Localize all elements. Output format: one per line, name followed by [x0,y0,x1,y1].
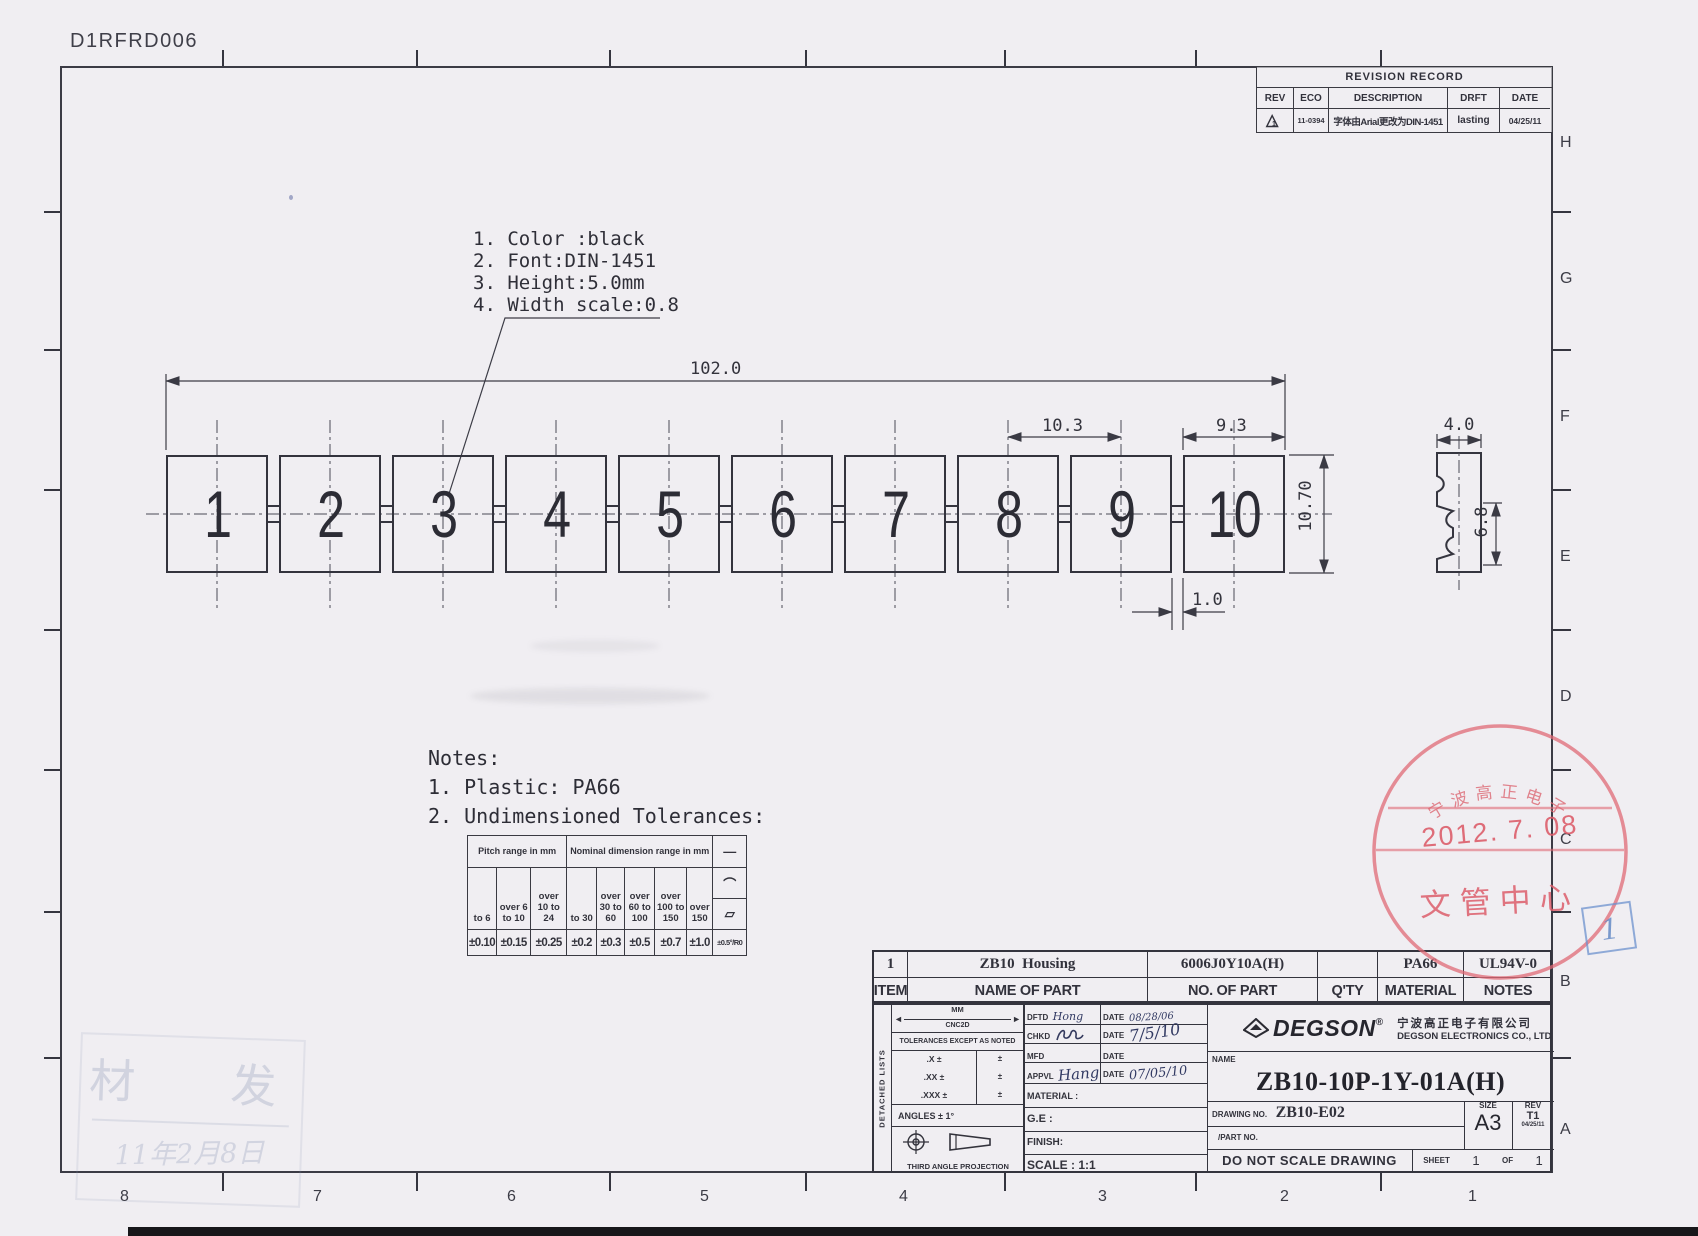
angle-symbol: ▱ [713,899,746,928]
zone-letter: G [1560,270,1572,288]
tolerance-table: Pitch range in mm Nominal dimension rang… [467,835,747,956]
cell-digit: 9 [1108,476,1134,552]
revision-col-drft: DRFT [1448,88,1500,109]
notes-block: Notes: 1. Plastic: PA66 2. Undimensioned… [428,744,765,831]
chkd-cell: CHKD [1027,1026,1085,1044]
revision-record-table: REVISION RECORD REV ECO DESCRIPTION DRFT… [1256,66,1553,133]
ge-label: G.E : [1027,1113,1053,1125]
revision-eco-cell: 11-0394 [1294,109,1329,132]
grid-line [1024,1154,1207,1155]
tol-x-row: .X ± [892,1054,976,1064]
revision-date-cell: 04/25/11 [1500,109,1550,132]
part-notes: UL94V-0 [1464,952,1552,977]
cell-digit: 8 [995,476,1021,552]
dim-label-cell-width: 9.3 [1216,416,1247,436]
revision-col-rev: REV [1257,88,1294,109]
pm-sign: ± [976,1090,1024,1099]
cell-digit: 6 [769,476,795,552]
dim-label-pitch: 10.3 [1042,416,1083,436]
tol-range: to 6 [468,868,497,930]
part-name-row: NAME ZB10-10P-1Y-01A(H) [1207,1051,1554,1101]
projection-label: THIRD ANGLE PROJECTION [892,1162,1024,1171]
strip-cell-3: 3 [392,455,494,573]
parts-col-qty: Q'TY [1318,978,1378,1004]
chkd-signature-icon [1055,1027,1085,1043]
zone-number: 3 [1098,1188,1107,1206]
rev-value: T1 [1512,1110,1554,1122]
date-label: DATE [1103,1070,1124,1079]
tol-pitch-header: Pitch range in mm [468,836,567,868]
scan-edge-bar [128,1227,1698,1236]
revision-col-desc: DESCRIPTION [1329,88,1448,109]
projection-box: THIRD ANGLE PROJECTION [892,1127,1024,1171]
part-qty [1318,952,1378,977]
grid-line [1024,1005,1025,1171]
parts-col-item: ITEM [874,978,908,1004]
marker-strip: 12345678910 [166,455,1286,573]
date-label: DATE [1103,1052,1124,1061]
pm-sign: ± [976,1072,1024,1081]
company-name-cn: 宁波高正电子有限公司 [1397,1015,1551,1031]
sheet-label: SHEET [1423,1156,1450,1165]
tolerances-note: TOLERANCES EXCEPT AS NOTED [892,1033,1024,1051]
appvl-date: 07/05/10 [1128,1063,1187,1083]
revision-header-row: REV ECO DESCRIPTION DRFT DATE [1257,88,1552,109]
tol-value: ±0.2 [567,930,597,956]
scan-smudge [530,640,660,652]
finish-label: FINISH: [1027,1137,1063,1148]
parts-col-name: NAME OF PART [908,978,1148,1004]
appvl-date-cell: DATE 07/05/10 [1103,1064,1187,1082]
cell-digit: 3 [430,476,456,552]
strip-cell-1: 1 [166,455,268,573]
scan-smudge [470,688,710,704]
zone-number: 6 [507,1188,516,1206]
tolerance-mini-grid: .X ± .XX ± .XXX ± ± ± ± [892,1051,1024,1105]
rev-label: REV [1512,1101,1554,1110]
company-block: 宁波高正电子有限公司 DEGSON ELECTRONICS CO., LTD [1397,1015,1551,1042]
dim-label-overall: 102.0 [690,359,741,379]
title-block: DETACHED LISTS MM ◄► CNC2D TOLERANCES EX… [872,1003,1552,1173]
strip-cell-4: 4 [505,455,607,573]
strip-cell-9: 9 [1070,455,1172,573]
size-value: A3 [1464,1110,1512,1136]
zone-number: 7 [313,1188,322,1206]
chkd-date: 7/5/10 [1128,1020,1182,1046]
drawing-no-label: DRAWING NO. [1212,1110,1267,1119]
dftd-signature: Hong [1053,1010,1083,1023]
mfd-label: MFD [1027,1052,1044,1061]
tol-value: ±0.25 [531,930,567,956]
tol-range: over 150 [687,868,713,930]
revision-rev-cell: △1 [1257,109,1294,132]
marking-spec-callout: 1. Color :black 2. Font:DIN-1451 3. Heig… [473,228,679,316]
chkd-date-cell: DATE 7/5/10 [1103,1023,1180,1043]
drawing-no-value: ZB10-E02 [1276,1104,1345,1121]
revision-triangle-icon: △1 [1266,113,1284,128]
tol-range: over 100 to 150 [655,868,687,930]
blue-stamp-number: 1 [1599,909,1620,948]
callout-line: 3. Height:5.0mm [473,272,679,294]
revision-drft-cell: lasting [1448,109,1500,132]
tol-range: over 6 to 10 [497,868,531,930]
faint-department-stamp: 材 发 11年2月8日 [75,1032,306,1208]
scale-label: SCALE : 1:1 [1027,1158,1096,1172]
strip-cell-5: 5 [618,455,720,573]
of-number: 1 [1536,1153,1543,1168]
units-box: MM ◄► CNC2D [892,1005,1024,1033]
date-label: DATE [1103,1031,1124,1040]
part-number: 6006J0Y10A(H) [1148,952,1318,977]
angles-tolerance: ANGLES ± 1° [892,1105,1024,1127]
part-no-label: /PART NO. [1218,1133,1258,1142]
tol-range: to 30 [567,868,597,930]
tol-value: ±0.10 [468,930,497,956]
revision-data-row: △1 11-0394 字体由Arial更改为DIN-1451 lasting 0… [1257,109,1552,132]
part-name-value: ZB10-10P-1Y-01A(H) [1207,1067,1554,1097]
tol-range: over 30 to 60 [597,868,625,930]
zone-letter: B [1560,973,1571,991]
revision-title: REVISION RECORD [1257,67,1552,88]
tol-value: ±0.15 [497,930,531,956]
appvl-signature: Hang [1057,1063,1100,1085]
parts-list-table: 1 ZB10 Housing 6006J0Y10A(H) PA66 UL94V-… [872,950,1552,1003]
sheet-number: 1 [1472,1153,1479,1168]
zone-letter: E [1560,548,1571,566]
dim-label-tab: 1.0 [1192,590,1223,610]
brand-name: DEGSON [1273,1015,1376,1042]
part-item: 1 [874,952,908,977]
detached-lists-label: DETACHED LISTS [878,1049,887,1127]
revision-desc-cell: 字体由Arial更改为DIN-1451 [1329,109,1448,132]
revision-col-eco: ECO [1294,88,1329,109]
parts-col-no: NO. OF PART [1148,978,1318,1004]
zone-letter: H [1560,134,1572,152]
dim-label-side-height: 6.8 [1472,500,1492,544]
appvl-cell: APPVL Hang [1027,1065,1099,1084]
chkd-label: CHKD [1027,1032,1050,1041]
tol-range: over 60 to 100 [625,868,655,930]
do-not-scale-note: DO NOT SCALE DRAWING [1207,1149,1412,1171]
callout-line: 1. Color :black [473,228,679,250]
brand-row: DEGSON ® 宁波高正电子有限公司 DEGSON ELECTRONICS C… [1207,1005,1554,1051]
part-material: PA66 [1378,952,1464,977]
dim-label-height: 10.70 [1296,476,1316,536]
grid-line [1024,1131,1207,1132]
grid-line [1207,1126,1464,1127]
cell-digit: 1 [204,476,230,552]
zone-letter: F [1560,408,1570,426]
size-label: SIZE [1464,1101,1512,1110]
document-code: D1RFRD006 [70,30,198,53]
zone-number: 4 [899,1188,908,1206]
dim-label-side-width: 4.0 [1437,415,1481,435]
faint-stamp-handwriting: 11年2月8日 [87,1130,293,1173]
company-name-en: DEGSON ELECTRONICS CO., LTD [1397,1031,1551,1042]
zone-number: 1 [1468,1188,1477,1206]
tol-xx-row: .XX ± [892,1072,976,1082]
mfd-cell: MFD [1027,1046,1044,1064]
material-label: MATERIAL : [1027,1091,1078,1101]
cnc-label: CNC2D [892,1022,1023,1029]
dftd-label: DFTD [1027,1013,1048,1022]
zone-letter: A [1560,1121,1571,1139]
cell-digit: 2 [317,476,343,552]
callout-line: 2. Font:DIN-1451 [473,250,679,272]
rev-date: 04/25/11 [1512,1122,1554,1128]
cell-digit: 5 [656,476,682,552]
tol-nominal-header: Nominal dimension range in mm [567,836,713,868]
zone-letter: C [1560,831,1572,849]
size-cell: SIZE A3 [1464,1101,1512,1149]
faint-stamp-line [92,1119,289,1128]
zone-number: 8 [120,1188,129,1206]
parts-data-row: 1 ZB10 Housing 6006J0Y10A(H) PA66 UL94V-… [874,952,1550,978]
strip-cell-7: 7 [844,455,946,573]
dftd-cell: DFTD Hong [1027,1007,1083,1025]
cell-digit: 4 [543,476,569,552]
sheet-cell: SHEET 1 OF 1 [1412,1149,1554,1171]
strip-cell-10: 10 [1183,455,1285,573]
tol-value: ±1.0 [687,930,713,956]
rev-cell: REV T1 04/25/11 [1512,1101,1554,1149]
tol-range: over 10 to 24 [531,868,567,930]
tol-value: ±0.7 [655,930,687,956]
strip-cell-2: 2 [279,455,381,573]
pm-sign: ± [976,1054,1024,1063]
strip-cell-6: 6 [731,455,833,573]
tol-symbol-cell: ⌒ ▱ [713,868,747,930]
callout-line: 4. Width scale:0.8 [473,294,679,316]
ink-speck [289,195,293,200]
cell-digit: 10 [1208,476,1261,552]
of-label: OF [1502,1156,1513,1165]
appvl-label: APPVL [1027,1072,1054,1081]
scanned-engineering-drawing: D1RFRD006 H G F E D C B A 8 7 6 5 4 3 2 … [0,0,1698,1236]
parts-col-notes: NOTES [1464,978,1552,1004]
grid-line [1024,1107,1207,1108]
faint-stamp-characters: 材 发 [88,1044,295,1117]
drawing-no-cell: DRAWING NO. ZB10-E02 [1212,1104,1345,1122]
zone-number: 5 [700,1188,709,1206]
part-name: ZB10 Housing [908,952,1148,977]
parts-col-material: MATERIAL [1378,978,1464,1004]
date-label: DATE [1103,1013,1124,1022]
mfd-date-cell: DATE [1103,1046,1124,1064]
revision-col-date: DATE [1500,88,1550,109]
notes-line: 1. Plastic: PA66 [428,773,765,802]
zone-number: 2 [1280,1188,1289,1206]
notes-title: Notes: [428,744,765,773]
notes-line: 2. Undimensioned Tolerances: [428,802,765,831]
detached-lists-strip: DETACHED LISTS [874,1005,892,1171]
straightness-symbol: — [713,836,747,868]
strip-cell-8: 8 [957,455,1059,573]
units-label: MM [892,1005,1023,1014]
tol-symbol-value: ±0.5°/R0 [713,930,747,956]
cell-digit: 7 [882,476,908,552]
blue-number-stamp: 1 [1581,901,1637,955]
parts-header-row: ITEM NAME OF PART NO. OF PART Q'TY MATER… [874,978,1550,1004]
degson-logo-icon [1243,1018,1269,1038]
name-label: NAME [1212,1055,1236,1064]
tol-value: ±0.3 [597,930,625,956]
tol-xxx-row: .XXX ± [892,1090,976,1100]
tol-value: ±0.5 [625,930,655,956]
third-angle-projection-icon [898,1129,1018,1157]
zone-letter: D [1560,688,1572,706]
registered-mark: ® [1376,1017,1383,1028]
arc-symbol: ⌒ [713,870,746,899]
